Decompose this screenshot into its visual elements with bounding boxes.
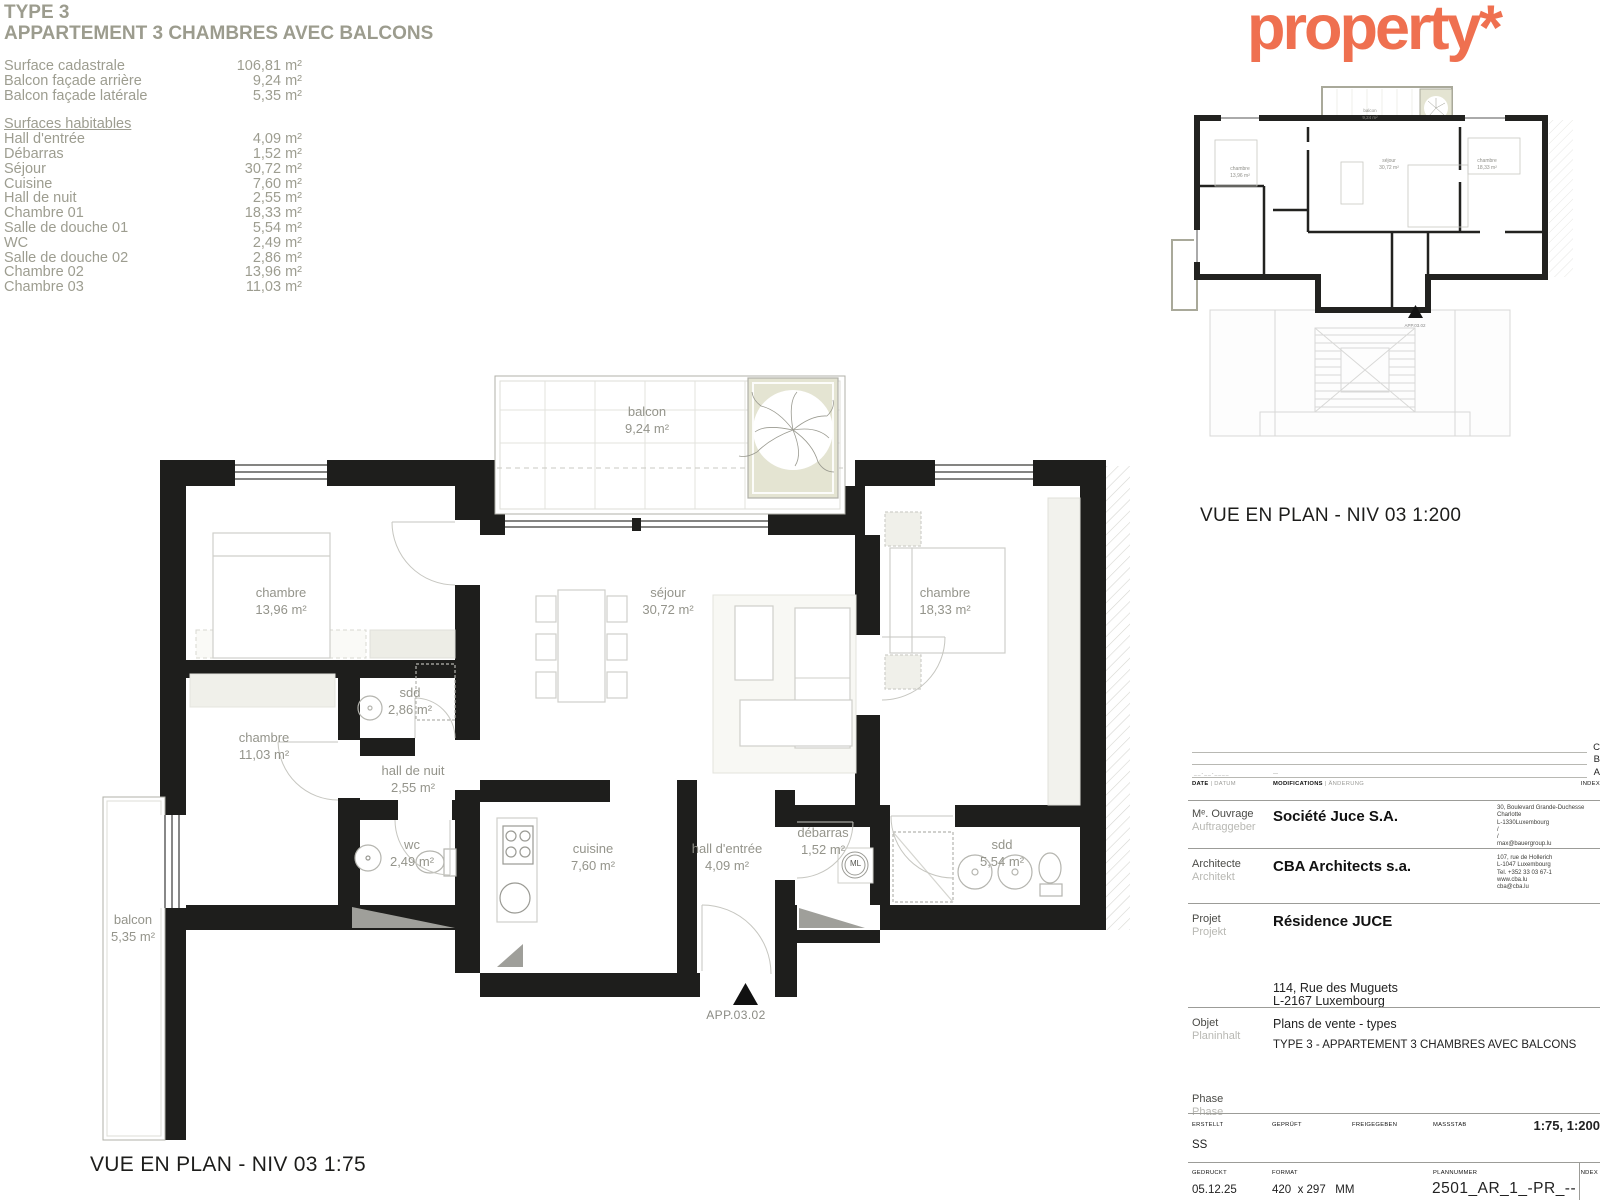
room-label-hall-de-nuit: hall de nuit 2,55 m² [382,762,445,796]
modifications-header: MODIFICATIONS | ÄNDERUNG [1273,781,1364,787]
svg-text:18,33 m²: 18,33 m² [1477,165,1497,171]
washing-machine-label: ML [847,859,864,868]
table-row: Chambre 0213,96 m² [4,265,302,280]
room-area: 5,54 m² [980,853,1024,870]
architect-label: Architecte [1192,858,1241,870]
sheet-header: TYPE 3 APPARTEMENT 3 CHAMBRES AVEC BALCO… [4,2,433,44]
type-label: TYPE 3 [4,2,433,23]
table-row: Séjour30,72 m² [4,162,302,177]
erstellt-header: ERSTELLT [1192,1122,1223,1128]
glass-door [505,518,768,531]
plannummer-value: 2501_AR_1_-PR_--_009 [1432,1180,1600,1200]
wall-segment [338,660,360,740]
room-label-sdd-02: sdd 2,86 m² [388,684,432,718]
table-row: WC2,49 m² [4,236,302,251]
erstellt-value: SS [1192,1139,1207,1151]
bathroom-fixtures [893,832,1062,902]
gedruckt-header: GEDRUCKT [1192,1170,1227,1176]
date-header: DATE | DATUM [1192,781,1236,787]
gedruckt-value: 05.12.25 [1192,1184,1237,1196]
revision-line [1192,764,1587,765]
room-name: chambre [919,584,970,601]
table-row: Salle de douche 015,54 m² [4,221,302,236]
revision-date-placeholder: __-__-____ [1194,771,1230,777]
table-row: Hall d'entrée4,09 m² [4,132,302,147]
wall-segment [855,535,880,635]
project-address-line1: 114, Rue des Muguets [1273,981,1398,995]
wall-segment [855,460,935,486]
room-name: débarras [797,824,848,841]
table-row: Chambre 0311,03 m² [4,280,302,295]
mini-balcony-rear [1322,87,1452,150]
room-area: 9,24 m² [625,420,669,437]
wall-segment [480,780,610,802]
table-row: Chambre 0118,33 m² [4,206,302,221]
phase-label: Phase [1192,1093,1223,1105]
mini-room-labels: chambre 13,96 m² séjour 30,72 m² chambre… [1230,108,1497,179]
object-line1: Plans de vente - types [1273,1017,1397,1031]
wall-segment [677,780,697,997]
client-label: Mᵉ. Ouvrage [1192,808,1254,820]
mini-apartment-number: APP.03.02 [1405,323,1426,328]
project-section: Projet Projekt Résidence JUCE 114, Rue d… [1192,903,1600,1007]
wall-segment [480,973,700,997]
index-header: INDEX [1579,1170,1598,1176]
wall-segment [160,905,480,930]
room-area: 7,60 m² [571,857,615,874]
wall-segment [480,486,505,535]
room-area: 5,35 m² [111,928,155,945]
client-section: Mᵉ. Ouvrage Auftraggeber Société Juce S.… [1192,800,1600,848]
wall-segment [797,930,880,943]
dining-table [536,590,627,702]
geprueft-header: GEPRÜFT [1272,1122,1302,1128]
revision-index: A [1588,767,1600,778]
svg-text:13,96 m²: 13,96 m² [1230,173,1250,179]
entrance-marker [733,983,758,1005]
format-value: 420 x 297 MM [1272,1184,1354,1196]
room-name: séjour [642,584,693,601]
revision-mod-placeholder: — [1273,771,1279,777]
main-plan-caption: VUE EN PLAN - NIV 03 1:75 [90,1153,366,1177]
object-line2: TYPE 3 - APPARTEMENT 3 CHAMBRES AVEC BAL… [1273,1039,1576,1051]
table-row: Débarras1,52 m² [4,147,302,162]
mini-hatch [1549,120,1573,277]
room-name: chambre [239,729,290,746]
room-area: 13,96 m² [255,601,306,618]
wall-segment [775,905,797,997]
plan-sheet: TYPE 3 APPARTEMENT 3 CHAMBRES AVEC BALCO… [0,0,1600,1200]
massstab-header: MASSSTAB [1433,1122,1467,1128]
table-row: Surface cadastrale106,81 m² [4,59,302,74]
room-label-balcon-arriere: balcon 9,24 m² [625,403,669,437]
revision-line [1192,752,1587,753]
revision-index: B [1588,754,1600,765]
index-header: INDEX [1581,781,1600,787]
wall-segment [360,738,415,756]
mini-balcony-side [1172,240,1197,310]
faded-building [1210,310,1510,436]
mini-apartment: chambre 13,96 m² séjour 30,72 m² chambre… [1194,108,1573,328]
wall-segment [880,905,1080,930]
table-row: Hall de nuit2,55 m² [4,191,302,206]
wall-segment [775,880,795,905]
room-label-debarras: débarras 1,52 m² [797,824,848,858]
freigegeben-header: FREIGEGEBEN [1352,1122,1397,1128]
room-name: hall d'entrée [692,840,762,857]
room-name: wc [390,836,434,853]
revision-line [1192,777,1587,778]
wall-segment [455,486,480,520]
object-section: Objet Planinhalt Plans de vente - types … [1192,1007,1600,1113]
approval-section: ERSTELLT GEPRÜFT FREIGEGEBEN MASSSTAB 1:… [1192,1113,1600,1162]
surface-table: Surface cadastrale106,81 m² Balcon façad… [4,59,302,295]
title-block: C B A __-__-____ — DATE | DATUM MODIFICA… [1192,740,1600,1200]
wall-segment [160,908,186,1140]
table-row: Balcon façade latérale5,35 m² [4,89,302,104]
mini-entrance-marker [1408,305,1423,318]
architect-section: Architecte Architekt CBA Architects s.a.… [1192,848,1600,903]
room-label-balcon-lateral: balcon 5,35 m² [111,911,155,945]
room-label-chambre-03: chambre 11,03 m² [239,729,290,763]
wall-segment [955,805,1080,827]
svg-text:séjour: séjour [1382,158,1396,164]
room-area: 18,33 m² [919,601,970,618]
svg-text:balcon: balcon [1363,108,1377,113]
architect-name: CBA Architects s.a. [1273,858,1411,875]
apartment-number-label: APP.03.02 [690,1008,782,1022]
svg-text:chambre: chambre [1477,158,1497,164]
neighbour-hatch [1106,466,1130,930]
room-label-cuisine: cuisine 7,60 m² [571,840,615,874]
room-area: 2,49 m² [390,853,434,870]
object-label: Objet [1192,1017,1218,1029]
print-section: GEDRUCKT FORMAT PLANNUMMER INDEX 05.12.2… [1192,1162,1600,1200]
room-name: sdd [388,684,432,701]
format-header: FORMAT [1272,1170,1298,1176]
wall-segment [1080,460,1106,930]
plannummer-header: PLANNUMMER [1433,1170,1477,1176]
mini-furniture [1215,138,1520,227]
project-label: Projet [1192,913,1221,925]
wardrobe-zone [190,498,1080,805]
wall-segment [338,800,398,820]
room-label-sdd-01: sdd 5,54 m² [980,836,1024,870]
wall-segment [186,660,480,678]
project-address-line2: L-2167 Luxembourg [1273,994,1385,1008]
room-label-hall-entree: hall d'entrée 4,09 m² [692,840,762,874]
svg-text:9,24 m²: 9,24 m² [1362,115,1378,120]
room-name: chambre [255,584,306,601]
table-row: Cuisine7,60 m² [4,177,302,192]
index-divider [1579,1162,1580,1200]
room-name: balcon [111,911,155,928]
table-row: Salle de douche 022,86 m² [4,251,302,266]
room-label-sejour: séjour 30,72 m² [642,584,693,618]
client-address: 30, Boulevard Grande-Duchesse Charlotte … [1497,805,1599,849]
sofa [713,595,856,773]
room-name: sdd [980,836,1024,853]
project-name: Résidence JUCE [1273,913,1392,930]
kitchen-counter [497,818,537,922]
scale-value: 1:75, 1:200 [1534,1118,1600,1133]
property-logo: property* [1247,0,1500,64]
wall-segment [327,460,495,486]
revision-index: C [1588,742,1600,753]
room-area: 2,86 m² [388,701,432,718]
overview-plan: chambre 13,96 m² séjour 30,72 m² chambre… [1165,82,1585,454]
wall-segment [870,827,890,905]
wall-segment [1033,460,1080,486]
room-label-wc: wc 2,49 m² [390,836,434,870]
svg-text:chambre: chambre [1230,166,1250,172]
overview-plan-caption: VUE EN PLAN - NIV 03 1:200 [1200,505,1461,527]
svg-text:30,72 m²: 30,72 m² [1379,165,1399,171]
wall-segment [768,486,865,535]
room-area: 1,52 m² [797,841,848,858]
room-area: 30,72 m² [642,601,693,618]
client-name: Société Juce S.A. [1273,808,1398,825]
tree-icon [739,378,838,498]
room-name: cuisine [571,840,615,857]
habitables-title: Surfaces habitables [4,117,302,132]
page-title: APPARTEMENT 3 CHAMBRES AVEC BALCONS [4,23,433,44]
room-name: hall de nuit [382,762,445,779]
mini-window [1194,115,1505,262]
room-label-chambre-01: chambre 18,33 m² [919,584,970,618]
wall-segment [160,460,186,815]
table-row: Balcon façade arrière9,24 m² [4,74,302,89]
room-area: 2,55 m² [382,779,445,796]
wall-segment [452,800,480,820]
wall-segment [855,715,880,805]
room-label-chambre-02: chambre 13,96 m² [255,584,306,618]
balcony-side [103,797,165,1140]
room-area: 4,09 m² [692,857,762,874]
room-name: balcon [625,403,669,420]
architect-address: 107, rue de Hollerich L-1047 Luxembourg … [1497,855,1599,891]
room-area: 11,03 m² [239,746,290,763]
